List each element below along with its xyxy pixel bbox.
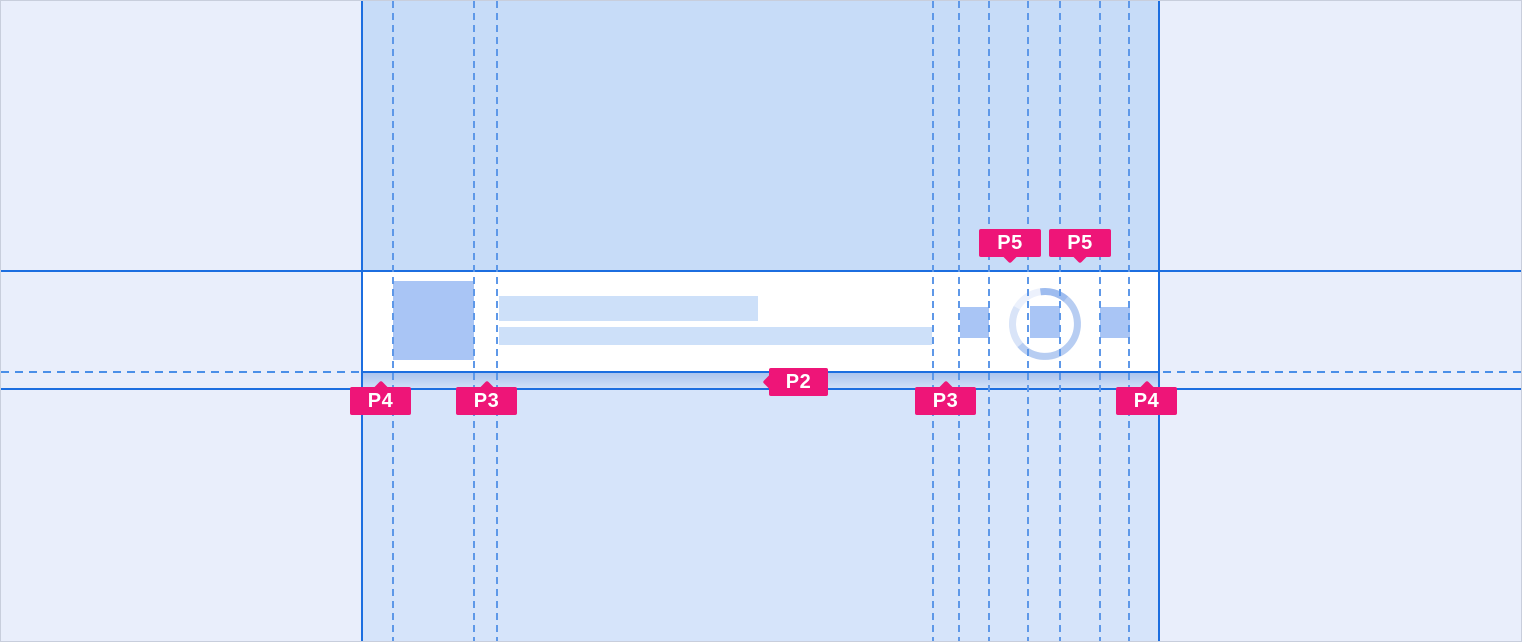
padding-label-text: P4 [1116,387,1177,415]
trailing-icon-placeholder-3 [1100,307,1130,338]
padding-label-p3-left: P3 [456,387,517,415]
guide-vline-avatar-right [473,1,475,641]
padding-label-text: P4 [350,387,411,415]
trailing-icon-placeholder-2 [1030,306,1060,338]
padding-label-p5-right: P5 [1049,229,1111,257]
redline-spec-canvas: P5 P5 P2 P4 P3 P3 P4 [0,0,1522,642]
guide-vline-band-right [1158,1,1160,641]
title-line-placeholder [499,296,758,321]
guide-vline-text-left [496,1,498,641]
guide-hline-card-bottom-solid [362,371,1160,373]
padding-label-text: P3 [456,387,517,415]
padding-label-p4-right: P4 [1116,387,1177,415]
guide-hline-card-top [1,270,1521,272]
guide-vline-icon1-right [988,1,990,641]
guide-vline-band-left [361,1,363,641]
padding-label-p4-left: P4 [350,387,411,415]
subtitle-line-placeholder [499,327,932,345]
padding-label-text: P5 [979,229,1041,257]
guide-vline-icon3-left [1099,1,1101,641]
guide-vline-text-right [932,1,934,641]
trailing-icon-placeholder-1 [960,307,989,338]
guide-vline-icon2-left [1027,1,1029,641]
padding-label-text: P2 [769,368,828,396]
padding-label-p3-right: P3 [915,387,976,415]
padding-label-p5-left: P5 [979,229,1041,257]
guide-vline-avatar-left [392,1,394,641]
padding-label-text: P5 [1049,229,1111,257]
guide-vline-icon2-right [1059,1,1061,641]
guide-hline-baseline [1,388,1521,390]
guide-vline-icon3-right [1128,1,1130,641]
padding-label-text: P3 [915,387,976,415]
padding-label-p2: P2 [769,368,828,396]
avatar-placeholder [393,281,474,360]
guide-vline-icon1-left [958,1,960,641]
column-overlay-bottom [362,389,1160,641]
